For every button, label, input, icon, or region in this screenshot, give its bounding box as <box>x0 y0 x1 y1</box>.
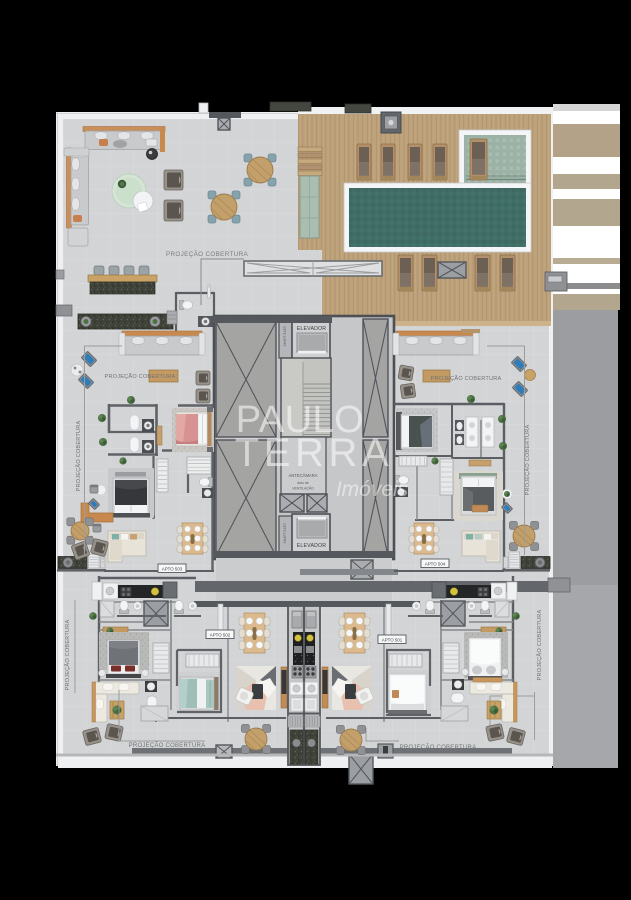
svg-text:Imóveis: Imóveis <box>336 478 409 501</box>
svg-text:ELEVADOR: ELEVADOR <box>297 326 327 332</box>
svg-text:ELEVADOR: ELEVADOR <box>297 543 327 549</box>
svg-text:VENTILAÇÃO: VENTILAÇÃO <box>292 486 314 491</box>
svg-text:SHAFT ELÉT.: SHAFT ELÉT. <box>282 522 287 543</box>
svg-text:PROJEÇÃO COBERTURA: PROJEÇÃO COBERTURA <box>129 742 206 749</box>
svg-text:duto de: duto de <box>297 481 308 485</box>
svg-text:PROJEÇÃO COBERTURA: PROJEÇÃO COBERTURA <box>105 373 176 380</box>
svg-text:PROJEÇÃO COBERTURA: PROJEÇÃO COBERTURA <box>400 744 477 751</box>
svg-text:PROJEÇÃO COBERTURA: PROJEÇÃO COBERTURA <box>524 424 531 495</box>
svg-text:PROJEÇÃO COBERTURA: PROJEÇÃO COBERTURA <box>431 375 502 382</box>
svg-text:PROJEÇÃO COBERTURA: PROJEÇÃO COBERTURA <box>64 619 71 690</box>
svg-text:APTO 504: APTO 504 <box>425 562 446 567</box>
svg-text:PROJEÇÃO COBERTURA: PROJEÇÃO COBERTURA <box>536 609 543 680</box>
svg-text:PROJEÇÃO COBERTURA: PROJEÇÃO COBERTURA <box>166 249 249 258</box>
svg-text:APTO 501: APTO 501 <box>382 638 403 643</box>
svg-text:APTO 502: APTO 502 <box>210 633 231 638</box>
svg-text:SHAFT ELÉT.: SHAFT ELÉT. <box>282 325 287 346</box>
svg-text:PROJEÇÃO COBERTURA: PROJEÇÃO COBERTURA <box>75 420 82 491</box>
svg-text:TERRA: TERRA <box>235 431 394 475</box>
svg-text:APTO 503: APTO 503 <box>162 567 183 572</box>
